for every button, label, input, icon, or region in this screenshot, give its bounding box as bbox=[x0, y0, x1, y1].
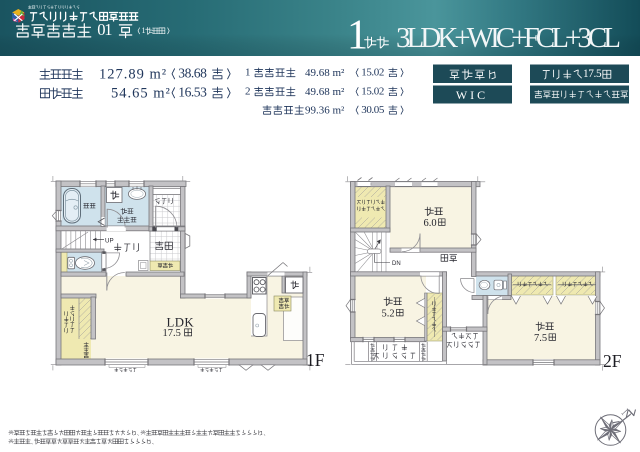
svg-text:1: 1 bbox=[347, 13, 368, 59]
svg-text:17.5: 17.5 bbox=[583, 68, 602, 80]
svg-text:3LDK+WIC+FCL+3CL: 3LDK+WIC+FCL+3CL bbox=[396, 22, 621, 54]
svg-text:DN: DN bbox=[392, 261, 401, 267]
svg-text:17.5: 17.5 bbox=[163, 328, 181, 339]
svg-text:6.0: 6.0 bbox=[424, 218, 437, 229]
svg-text:54.65 m²: 54.65 m² bbox=[111, 86, 171, 102]
svg-text:49.68 m²: 49.68 m² bbox=[305, 67, 345, 79]
svg-text:1F: 1F bbox=[306, 350, 325, 370]
svg-text:15.02: 15.02 bbox=[361, 67, 384, 79]
svg-text:2: 2 bbox=[245, 86, 251, 98]
svg-text:UP: UP bbox=[105, 238, 114, 245]
svg-text:38.68: 38.68 bbox=[178, 65, 207, 80]
svg-text:16.53: 16.53 bbox=[178, 84, 207, 99]
svg-text:1: 1 bbox=[245, 67, 251, 79]
svg-text:1: 1 bbox=[142, 26, 146, 35]
svg-text:99.36 m²: 99.36 m² bbox=[305, 105, 345, 117]
svg-text:30.05: 30.05 bbox=[361, 104, 385, 116]
svg-text:5.2: 5.2 bbox=[382, 309, 395, 320]
svg-text:7.5: 7.5 bbox=[534, 333, 547, 344]
svg-text:01: 01 bbox=[97, 20, 112, 39]
svg-text:49.68 m²: 49.68 m² bbox=[305, 86, 345, 98]
svg-text:2F: 2F bbox=[603, 351, 622, 371]
svg-text:127.89 m²: 127.89 m² bbox=[99, 67, 167, 83]
svg-text:15.02: 15.02 bbox=[361, 86, 384, 98]
svg-text:WIC: WIC bbox=[456, 88, 488, 102]
